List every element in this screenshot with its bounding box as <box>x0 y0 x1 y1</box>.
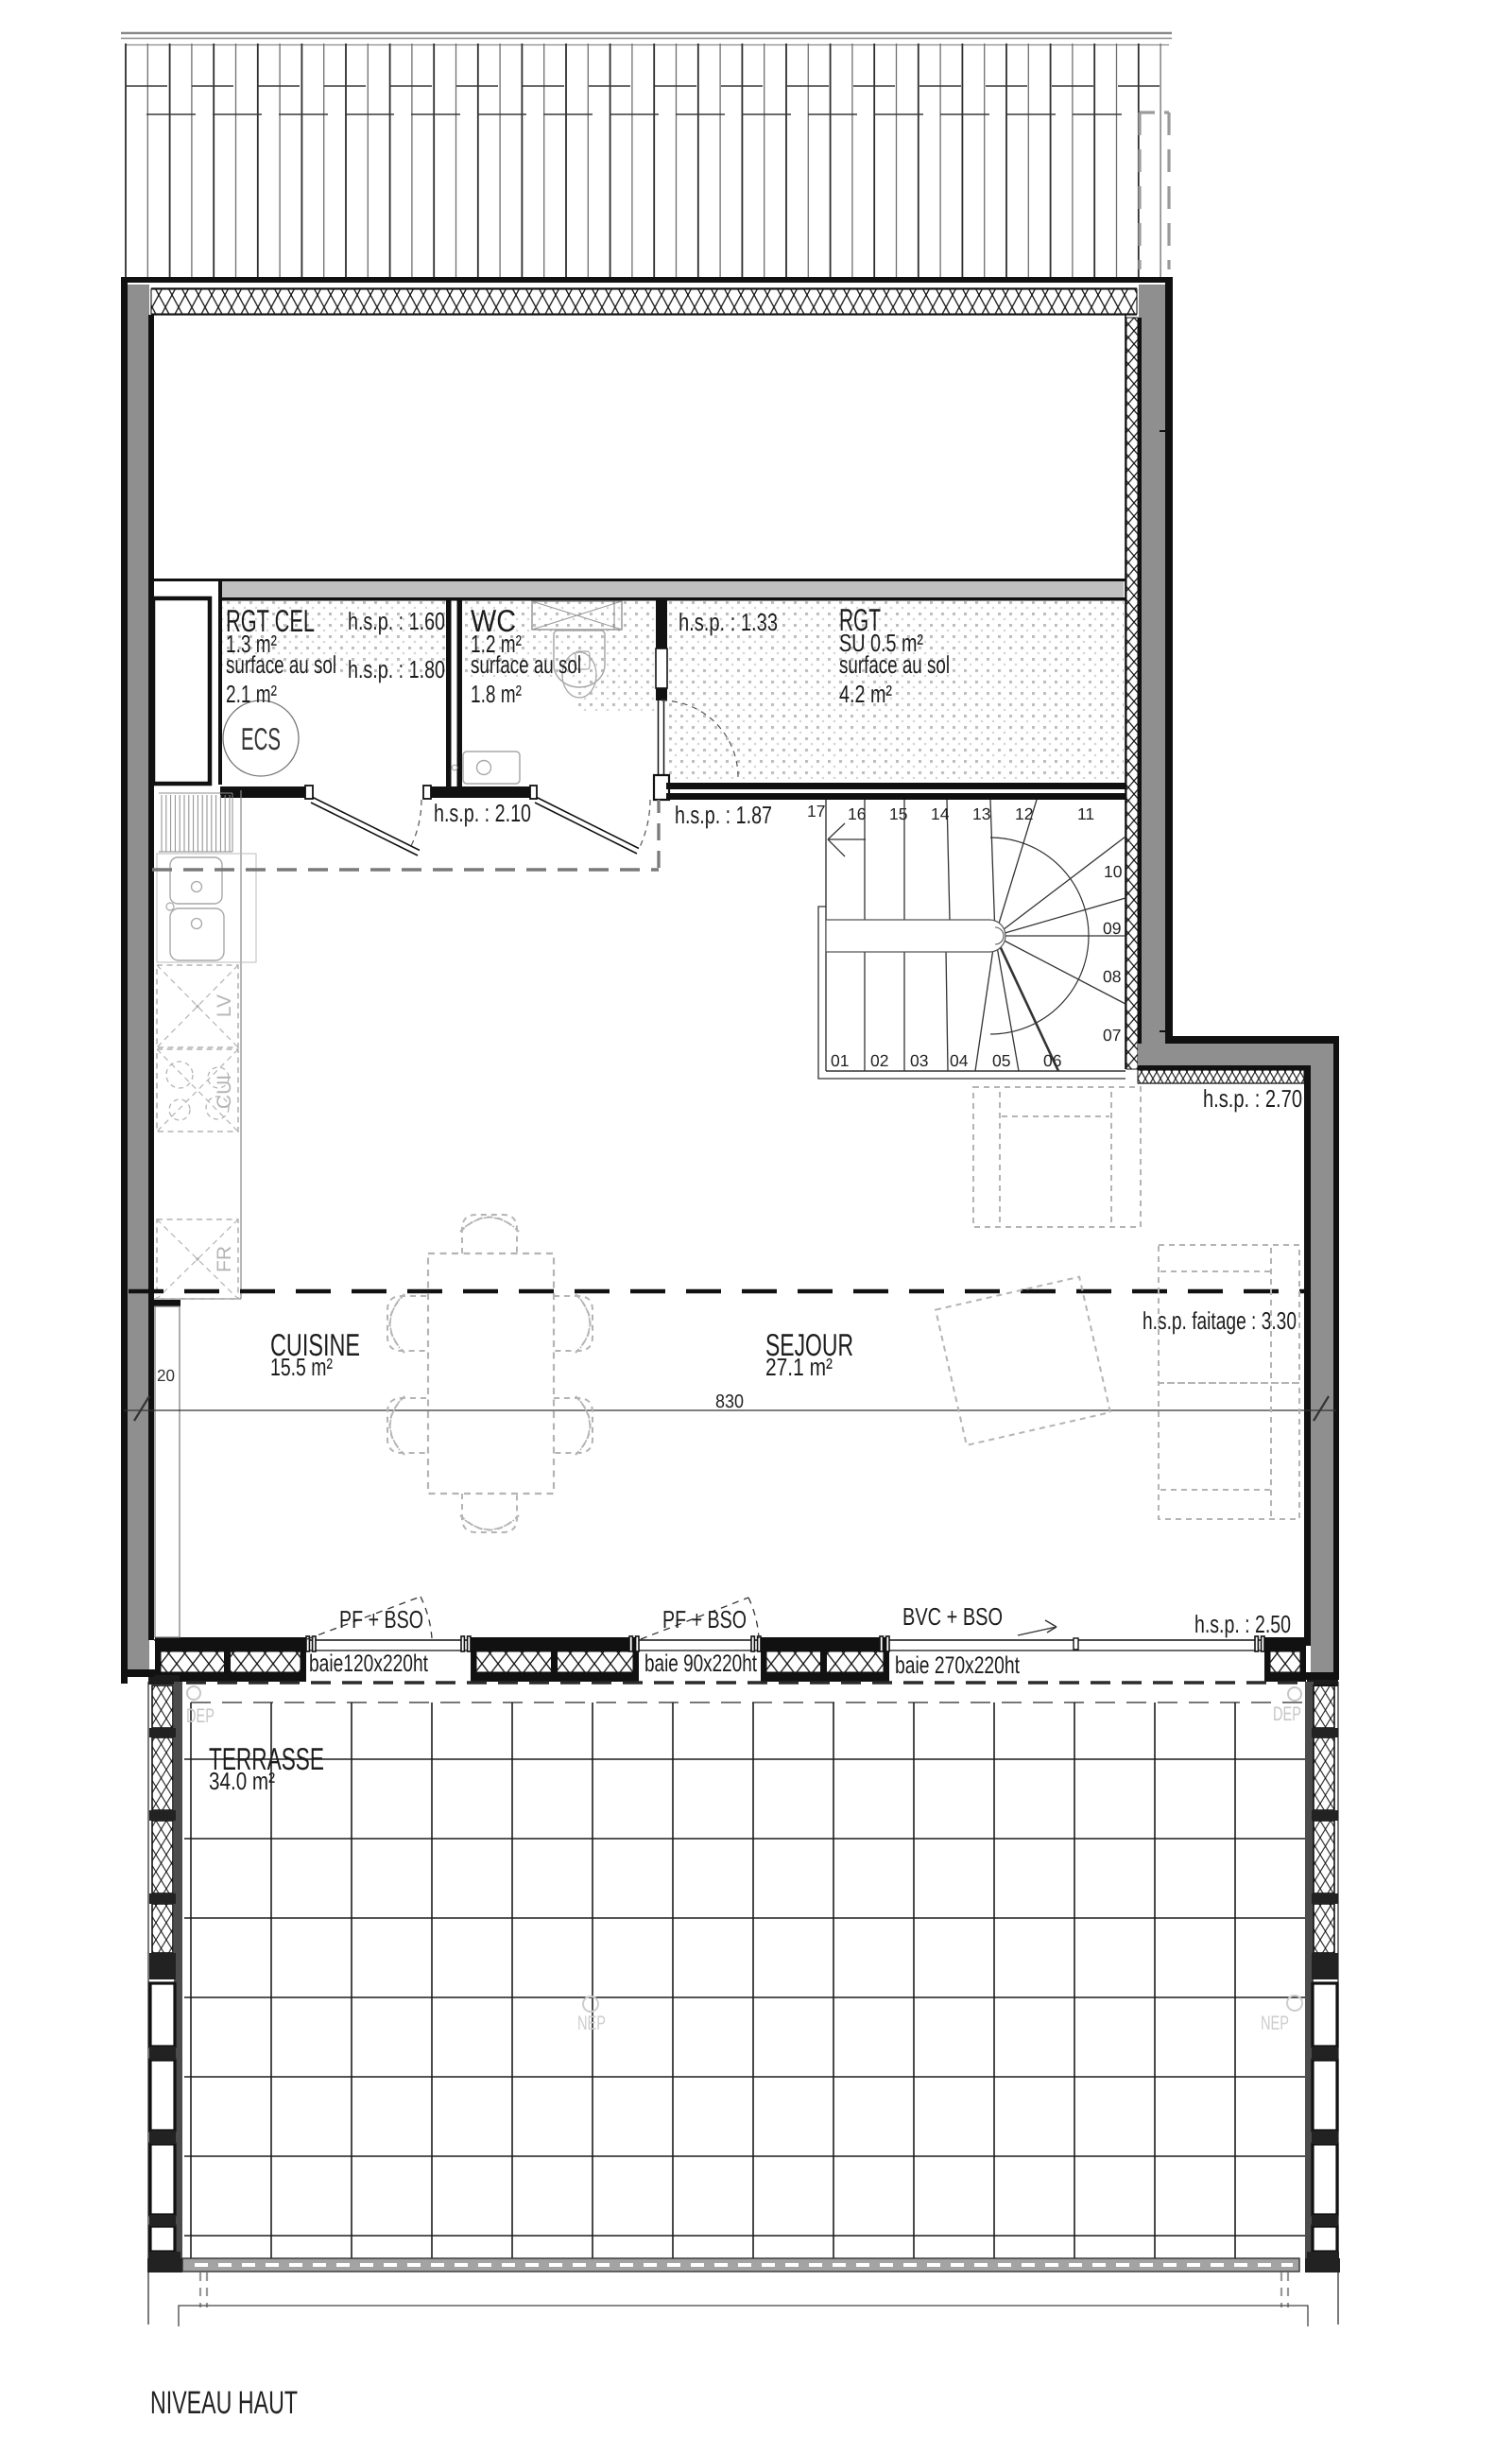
svg-text:h.s.p. : 2.10: h.s.p. : 2.10 <box>434 799 531 827</box>
svg-text:PF + BSO: PF + BSO <box>339 1605 423 1633</box>
svg-text:surface au sol: surface au sol <box>226 650 336 679</box>
svg-text:830: 830 <box>715 1391 744 1412</box>
svg-text:12: 12 <box>1015 804 1033 823</box>
svg-text:4.2 m²: 4.2 m² <box>839 680 892 708</box>
svg-text:surface au sol: surface au sol <box>471 650 581 679</box>
svg-text:NEP: NEP <box>1261 2013 1289 2034</box>
svg-text:27.1 m²: 27.1 m² <box>765 1353 833 1381</box>
svg-text:11: 11 <box>1077 804 1094 823</box>
svg-text:15: 15 <box>889 804 907 823</box>
svg-text:h.s.p. : 2.70: h.s.p. : 2.70 <box>1203 1084 1302 1113</box>
svg-text:07: 07 <box>1103 1026 1121 1045</box>
svg-text:BVC + BSO: BVC + BSO <box>902 1602 1003 1631</box>
svg-text:baie 270x220ht: baie 270x220ht <box>895 1652 1020 1679</box>
svg-text:NEP: NEP <box>577 2013 606 2034</box>
svg-text:FR: FR <box>214 1246 235 1272</box>
svg-text:LV: LV <box>214 994 235 1017</box>
svg-text:h.s.p. : 2.50: h.s.p. : 2.50 <box>1194 1610 1291 1638</box>
svg-text:01: 01 <box>831 1051 849 1070</box>
svg-text:2.1 m²: 2.1 m² <box>226 680 277 708</box>
svg-text:17: 17 <box>807 802 825 821</box>
svg-text:20: 20 <box>157 1366 175 1385</box>
svg-text:08: 08 <box>1103 967 1121 986</box>
svg-text:1.8 m²: 1.8 m² <box>471 680 522 708</box>
svg-text:h.s.p. : 1.33: h.s.p. : 1.33 <box>679 608 778 636</box>
svg-text:DEP: DEP <box>1273 1703 1301 1725</box>
svg-text:h.s.p. : 1.80: h.s.p. : 1.80 <box>348 655 445 683</box>
svg-text:34.0 m²: 34.0 m² <box>209 1767 275 1795</box>
svg-text:03: 03 <box>910 1051 928 1070</box>
svg-text:NIVEAU HAUT: NIVEAU HAUT <box>150 2385 298 2421</box>
svg-text:h.s.p. faitage : 3.30: h.s.p. faitage : 3.30 <box>1143 1306 1297 1335</box>
svg-text:05: 05 <box>992 1051 1010 1070</box>
svg-text:02: 02 <box>870 1051 888 1070</box>
svg-text:16: 16 <box>848 804 866 823</box>
svg-text:06: 06 <box>1043 1051 1061 1070</box>
svg-text:surface au sol: surface au sol <box>839 650 950 679</box>
svg-text:09: 09 <box>1103 919 1121 938</box>
svg-text:baie120x220ht: baie120x220ht <box>309 1650 428 1677</box>
svg-text:PF + BSO: PF + BSO <box>662 1605 747 1633</box>
svg-text:CUI: CUI <box>214 1075 235 1109</box>
svg-text:04: 04 <box>950 1051 969 1070</box>
svg-text:DEP: DEP <box>186 1705 215 1727</box>
svg-text:15.5 m²: 15.5 m² <box>270 1353 333 1381</box>
svg-text:10: 10 <box>1104 862 1123 881</box>
svg-text:ECS: ECS <box>241 721 281 756</box>
svg-text:13: 13 <box>972 804 990 823</box>
svg-text:h.s.p. : 1.60: h.s.p. : 1.60 <box>348 607 445 635</box>
svg-text:h.s.p. : 1.87: h.s.p. : 1.87 <box>675 801 772 829</box>
svg-text:baie 90x220ht: baie 90x220ht <box>644 1650 757 1677</box>
svg-text:14: 14 <box>931 804 950 823</box>
